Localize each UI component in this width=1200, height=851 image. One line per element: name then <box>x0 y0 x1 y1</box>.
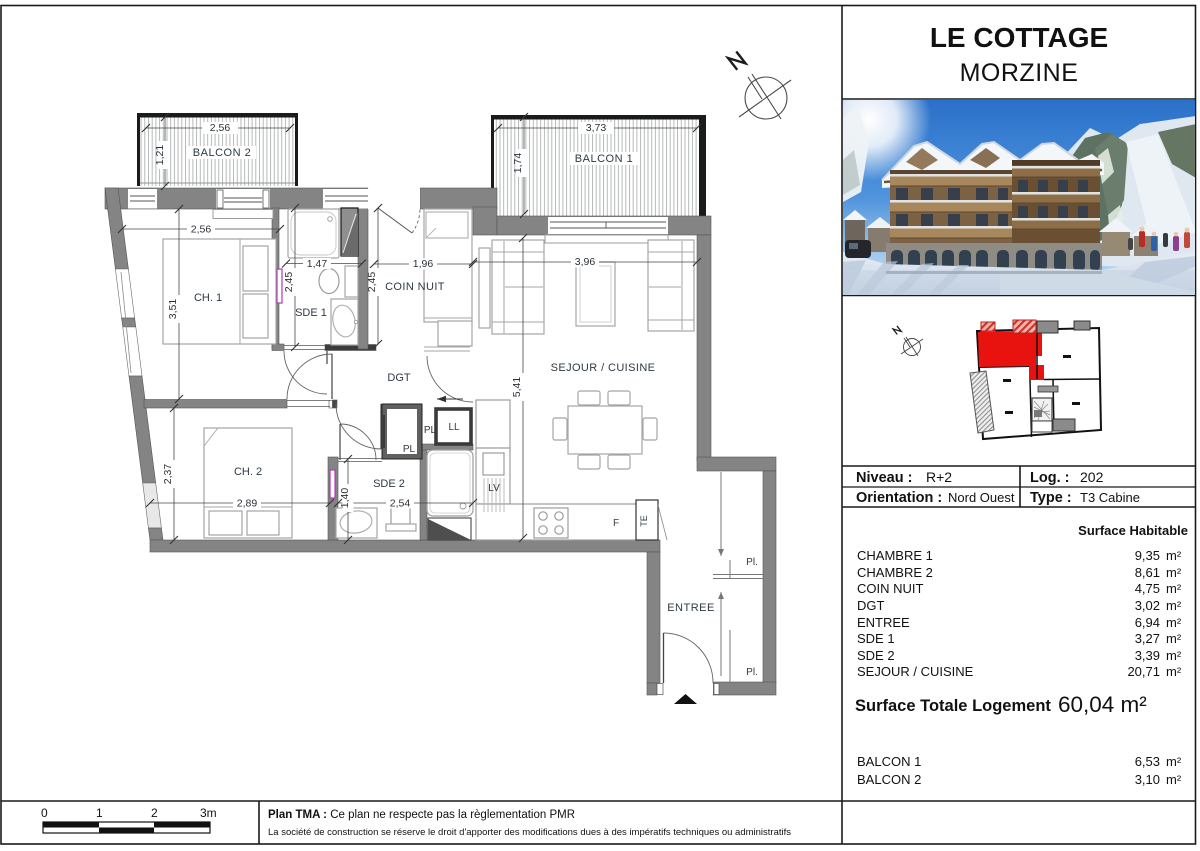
svg-text:BALCON 2: BALCON 2 <box>857 772 921 787</box>
svg-text:MORZINE: MORZINE <box>960 59 1079 87</box>
svg-text:Plan TMA : Ce plan ne respecte: Plan TMA : Ce plan ne respecte pas la rè… <box>268 809 575 821</box>
svg-text:m²: m² <box>1166 664 1182 679</box>
svg-text:2,89: 2,89 <box>237 498 258 510</box>
svg-text:F: F <box>613 518 619 529</box>
svg-text:ENTREE: ENTREE <box>667 602 715 614</box>
svg-text:m²: m² <box>1166 598 1182 613</box>
svg-text:Pl.: Pl. <box>746 667 758 678</box>
svg-text:m²: m² <box>1166 615 1182 630</box>
svg-text:CHAMBRE 2: CHAMBRE 2 <box>857 565 933 580</box>
svg-text:SEJOUR / CUISINE: SEJOUR / CUISINE <box>857 664 974 679</box>
svg-text:SDE 1: SDE 1 <box>295 307 327 319</box>
svg-text:CH. 1: CH. 1 <box>194 292 222 304</box>
svg-text:m²: m² <box>1166 648 1182 663</box>
svg-text:m²: m² <box>1166 581 1182 596</box>
svg-text:3,10: 3,10 <box>1135 772 1160 787</box>
svg-text:Nord Ouest: Nord Ouest <box>948 490 1015 505</box>
svg-text:1,47: 1,47 <box>307 258 328 270</box>
svg-text:m²: m² <box>1166 565 1182 580</box>
svg-text:Log. :: Log. : <box>1030 470 1069 486</box>
svg-text:3,02: 3,02 <box>1135 598 1160 613</box>
svg-text:SDE 1: SDE 1 <box>857 631 895 646</box>
svg-text:6,53: 6,53 <box>1135 754 1160 769</box>
svg-text:3m: 3m <box>200 806 217 820</box>
svg-text:3,96: 3,96 <box>575 256 596 268</box>
svg-text:3,51: 3,51 <box>167 299 179 320</box>
svg-text:1: 1 <box>96 806 103 820</box>
svg-text:3,73: 3,73 <box>586 122 607 134</box>
svg-text:Type :: Type : <box>1030 490 1072 506</box>
svg-text:CHAMBRE 1: CHAMBRE 1 <box>857 548 933 563</box>
svg-text:3,39: 3,39 <box>1135 648 1160 663</box>
svg-text:LV: LV <box>488 483 500 494</box>
svg-text:Pl.: Pl. <box>746 557 758 568</box>
svg-text:2,45: 2,45 <box>283 272 295 293</box>
svg-text:1,40: 1,40 <box>339 488 351 509</box>
svg-text:9,35: 9,35 <box>1135 548 1160 563</box>
svg-text:TE: TE <box>639 515 649 527</box>
svg-text:La société de construction se: La société de construction se réserve le… <box>268 827 791 838</box>
svg-text:1,96: 1,96 <box>413 258 434 270</box>
svg-text:m²: m² <box>1166 772 1182 787</box>
svg-text:m²: m² <box>1166 548 1182 563</box>
svg-text:1,74: 1,74 <box>512 153 524 174</box>
svg-text:3,27: 3,27 <box>1135 631 1160 646</box>
svg-text:2,37: 2,37 <box>162 464 174 485</box>
svg-text:60,04 m²: 60,04 m² <box>1058 692 1147 717</box>
svg-text:BALCON 2: BALCON 2 <box>193 147 251 159</box>
svg-text:SDE 2: SDE 2 <box>857 648 895 663</box>
svg-text:Niveau :: Niveau : <box>856 470 912 486</box>
svg-text:6,94: 6,94 <box>1135 615 1160 630</box>
svg-text:Surface Totale Logement: Surface Totale Logement <box>855 697 1051 715</box>
svg-text:ENTREE: ENTREE <box>857 615 910 630</box>
svg-text:1,21: 1,21 <box>154 145 166 166</box>
svg-text:R+2: R+2 <box>926 469 952 485</box>
svg-text:BALCON 1: BALCON 1 <box>575 153 633 165</box>
svg-text:m²: m² <box>1166 631 1182 646</box>
svg-text:m²: m² <box>1166 754 1182 769</box>
svg-text:LE COTTAGE: LE COTTAGE <box>930 22 1108 53</box>
svg-text:T3 Cabine: T3 Cabine <box>1080 490 1140 505</box>
svg-text:BALCON 1: BALCON 1 <box>857 754 921 769</box>
svg-text:SEJOUR / CUISINE: SEJOUR / CUISINE <box>551 362 656 374</box>
svg-text:COIN NUIT: COIN NUIT <box>857 581 924 596</box>
svg-text:0: 0 <box>41 806 48 820</box>
svg-text:PL: PL <box>403 444 416 455</box>
svg-text:2,45: 2,45 <box>366 272 378 293</box>
svg-text:COIN NUIT: COIN NUIT <box>385 281 445 293</box>
svg-text:DGT: DGT <box>387 372 411 384</box>
svg-text:202: 202 <box>1080 469 1104 485</box>
svg-text:2,54: 2,54 <box>390 498 411 510</box>
svg-text:LL: LL <box>448 422 460 433</box>
svg-text:4,75: 4,75 <box>1135 581 1160 596</box>
svg-text:2,56: 2,56 <box>191 224 212 236</box>
svg-text:2: 2 <box>151 806 158 820</box>
svg-text:PL: PL <box>424 425 437 436</box>
svg-text:5,41: 5,41 <box>511 377 523 398</box>
svg-text:2,56: 2,56 <box>210 122 231 134</box>
svg-text:CH. 2: CH. 2 <box>234 466 262 478</box>
svg-text:Surface Habitable: Surface Habitable <box>1078 523 1188 538</box>
svg-text:20,71: 20,71 <box>1127 664 1160 679</box>
svg-text:Orientation :: Orientation : <box>856 490 942 506</box>
svg-text:DGT: DGT <box>857 598 885 613</box>
svg-text:SDE 2: SDE 2 <box>373 478 405 490</box>
svg-text:8,61: 8,61 <box>1135 565 1160 580</box>
